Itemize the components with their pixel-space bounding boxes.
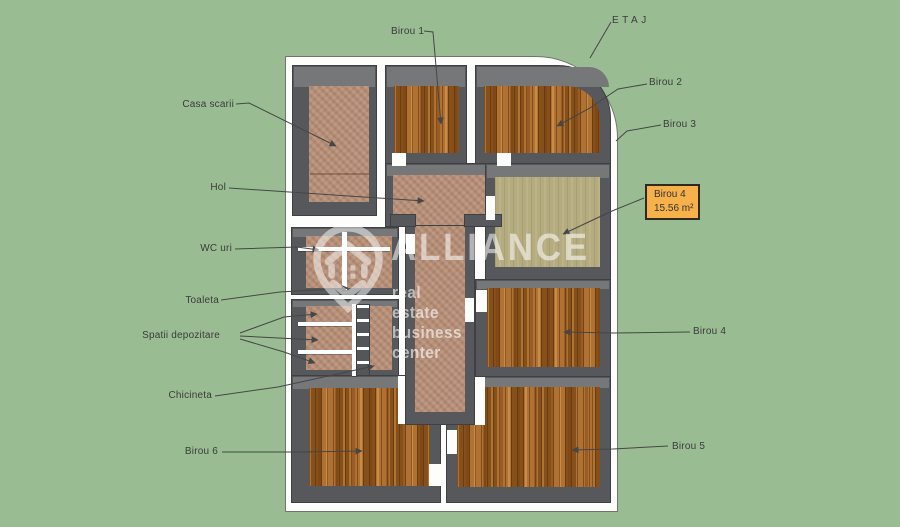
badge-room-area: 15.56 m² [654,202,698,216]
label-wc-uri: WC uri [130,243,232,254]
label-birou-2: Birou 2 [649,77,682,88]
badge-room-name: Birou 4 [654,188,698,202]
label-casa-scarii: Casa scarii [130,99,234,110]
label-birou-3: Birou 3 [663,119,696,130]
label-etaj: ETAJ [612,15,650,26]
label-birou-1: Birou 1 [391,26,424,37]
label-chicineta: Chicineta [130,390,212,401]
label-hol: Hol [130,182,226,193]
label-spatii-depozitare: Spatii depozitare [118,330,220,341]
birou-4-area-badge: Birou 4 15.56 m² [645,184,700,220]
label-toaleta: Toaleta [130,295,219,306]
floor-plan-scene: ALLIANCE real estate business center Bir… [0,0,900,527]
label-birou-6: Birou 6 [130,446,218,457]
label-birou-4: Birou 4 [693,326,726,337]
label-birou-5: Birou 5 [672,441,705,452]
